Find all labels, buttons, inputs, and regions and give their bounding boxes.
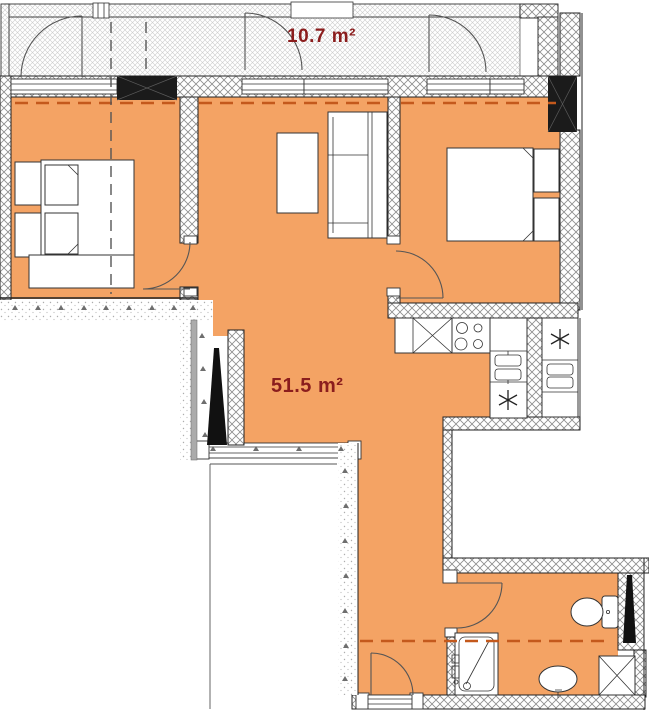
east-wall: [560, 130, 580, 310]
parapet-gap-wide: [291, 2, 353, 18]
floor-plan-drawing: 10.7 m² 51.5 m²: [0, 0, 649, 710]
west-wall: [0, 76, 11, 300]
stair-black-taper: [207, 348, 227, 445]
door-jamb: [387, 288, 400, 296]
parapet-gap: [93, 3, 109, 18]
hall-window-jamb: [196, 441, 209, 459]
stair-outline: [210, 464, 337, 709]
east-wall-upper: [560, 13, 580, 76]
toilet-icon: [571, 596, 618, 628]
wall-kitchen-north: [388, 303, 578, 318]
wall-kitchen-south: [443, 417, 580, 430]
wall-kitchen-partition: [527, 318, 542, 430]
stove-icon: [452, 318, 490, 353]
stair-gray-bar: [191, 320, 197, 460]
balcony-end-wall: [538, 17, 558, 78]
balcony-area-label: 10.7 m²: [287, 26, 356, 47]
apartment-area-label: 51.5 m²: [271, 375, 343, 397]
stipple-band-horizontal: [0, 300, 213, 322]
shower-icon: [452, 633, 498, 695]
kitchen-counter: [395, 318, 452, 353]
door-jamb: [387, 236, 400, 244]
bed-left-icon: [15, 160, 134, 288]
nightstand-icon: [15, 162, 41, 205]
wall-neighbor-west: [443, 430, 452, 560]
washing-machine-icon: [599, 656, 635, 695]
entrance-jamb: [356, 693, 369, 709]
north-windows: [11, 79, 524, 94]
pillow-icon: [45, 165, 78, 205]
bathroom-door-jamb: [443, 570, 457, 583]
balcony-parapet-left: [1, 4, 9, 78]
bed-foot-bench: [29, 255, 134, 288]
neighbor-kitchen: [542, 318, 580, 417]
stipple-band-corridor: [338, 443, 358, 695]
nightstand-icon: [15, 213, 41, 257]
balcony-parapet-top: [6, 4, 520, 17]
balcony-end-wall-top: [520, 4, 558, 18]
balcony: [1, 2, 558, 78]
nightstand-icon: [534, 149, 559, 192]
entrance-threshold: [368, 695, 412, 709]
wall-bathroom-north: [443, 558, 649, 573]
wall-bedroom-right: [388, 97, 400, 243]
hall-upper-floor: [197, 240, 389, 302]
balcony-floor: [9, 17, 520, 78]
floor-plan-page: 10.7 m² 51.5 m²: [0, 0, 649, 710]
wall-bedroom-left: [180, 97, 198, 243]
hall-window-band: [198, 443, 360, 458]
wardrobe-icon: [328, 112, 387, 238]
pillow-icon: [45, 213, 78, 254]
table-icon: [277, 133, 318, 213]
stair-wall-hatch: [228, 330, 244, 445]
nightstand-icon: [534, 198, 559, 241]
